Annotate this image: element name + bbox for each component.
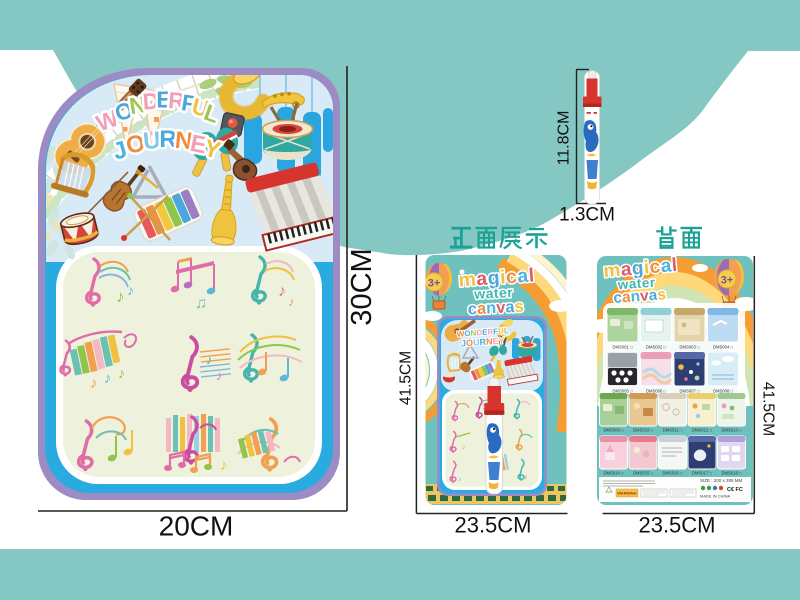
svg-text:DMS010 □: DMS010 □ xyxy=(633,428,653,433)
svg-text:SIZE : 200 x 285 MM: SIZE : 200 x 285 MM xyxy=(700,478,743,483)
svg-text:DMS017 □: DMS017 □ xyxy=(692,471,712,476)
svg-text:DMS001 □: DMS001 □ xyxy=(613,345,633,350)
svg-text:♪: ♪ xyxy=(462,444,466,451)
svg-text:41.5CM: 41.5CM xyxy=(760,382,777,436)
svg-text:41.5CM: 41.5CM xyxy=(398,351,415,405)
svg-text:WARNING: WARNING xyxy=(617,491,636,496)
svg-text:DMS015 □: DMS015 □ xyxy=(633,471,653,476)
svg-text:♪: ♪ xyxy=(524,474,528,481)
svg-text:11.8CM: 11.8CM xyxy=(556,111,573,166)
svg-text:20CM: 20CM xyxy=(159,511,234,542)
svg-text:23.5CM: 23.5CM xyxy=(454,513,531,538)
svg-text:DMS012 □: DMS012 □ xyxy=(692,428,712,433)
svg-text:1.3CM: 1.3CM xyxy=(559,205,615,226)
svg-text:C€ FC: C€ FC xyxy=(727,487,743,493)
svg-text:♪: ♪ xyxy=(458,476,462,483)
svg-text:♪: ♪ xyxy=(220,457,228,474)
svg-text:DMS016 □: DMS016 □ xyxy=(663,471,683,476)
svg-text:♪: ♪ xyxy=(206,352,213,367)
svg-text:♪: ♪ xyxy=(118,365,125,381)
svg-text:♪: ♪ xyxy=(288,294,295,309)
svg-text:DMS009 □: DMS009 □ xyxy=(604,428,624,433)
svg-text:DMS014 □: DMS014 □ xyxy=(604,471,624,476)
svg-text:♫: ♫ xyxy=(195,295,207,312)
svg-text:3+: 3+ xyxy=(428,278,441,290)
svg-text:30CM: 30CM xyxy=(346,248,378,325)
svg-text:DMS013 □: DMS013 □ xyxy=(722,428,742,433)
svg-text:DMS011 □: DMS011 □ xyxy=(663,428,683,433)
svg-text:♪: ♪ xyxy=(278,283,286,300)
svg-text:3+: 3+ xyxy=(721,275,734,287)
svg-text:DMS002 □: DMS002 □ xyxy=(646,345,666,350)
svg-text:canvas: canvas xyxy=(467,298,524,319)
svg-text:23.5CM: 23.5CM xyxy=(638,513,715,538)
svg-text:MADE IN CHINA: MADE IN CHINA xyxy=(700,494,731,499)
svg-text:♪: ♪ xyxy=(90,375,98,392)
svg-text:♪: ♪ xyxy=(104,370,112,387)
svg-text:♪: ♪ xyxy=(116,287,125,306)
svg-text:♪: ♪ xyxy=(216,368,223,383)
svg-text:DMS018 □: DMS018 □ xyxy=(722,471,742,476)
svg-text:DMS003 □: DMS003 □ xyxy=(680,345,700,350)
svg-text:DMS004 □: DMS004 □ xyxy=(713,345,733,350)
svg-text:♪: ♪ xyxy=(127,282,134,298)
